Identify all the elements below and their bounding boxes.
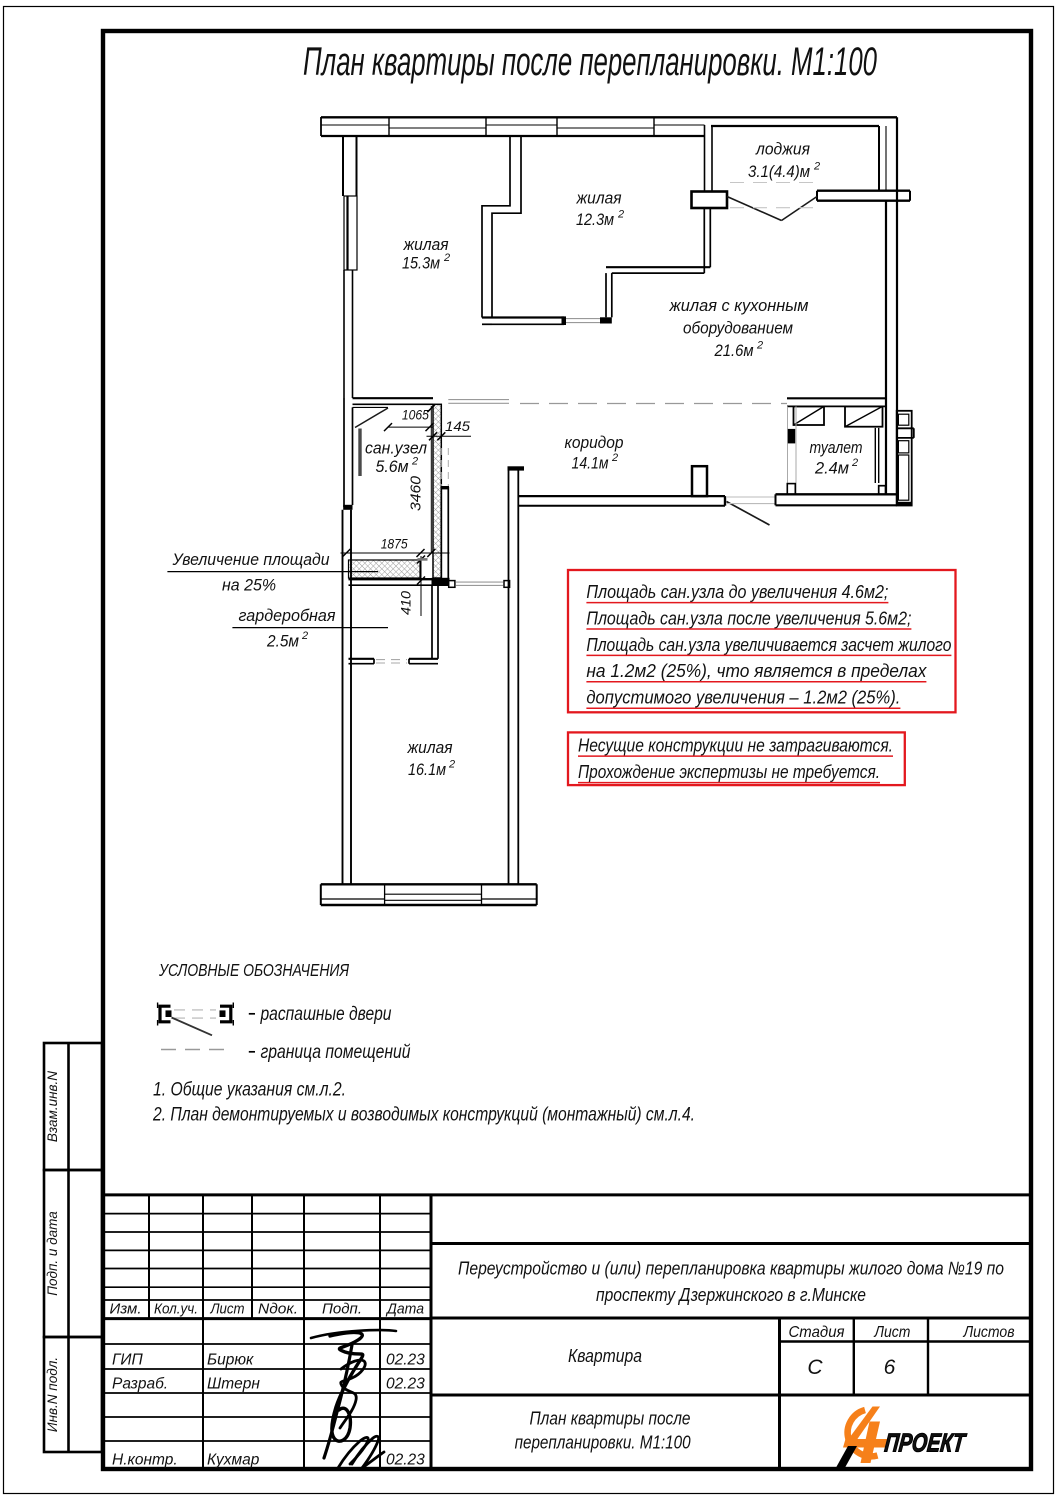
svg-text:14.1м: 14.1м bbox=[572, 455, 609, 473]
svg-text:1875: 1875 bbox=[381, 537, 408, 552]
svg-text:жилая: жилая bbox=[576, 190, 622, 208]
svg-text:12.3м: 12.3м bbox=[576, 211, 614, 229]
svg-text:жилая: жилая bbox=[403, 236, 449, 254]
svg-text:3460: 3460 bbox=[409, 476, 425, 511]
svg-text:2: 2 bbox=[411, 456, 418, 468]
svg-text:1. Общие указания см.л.2.: 1. Общие указания см.л.2. bbox=[153, 1080, 346, 1101]
svg-text:С: С bbox=[807, 1356, 823, 1379]
svg-text:6: 6 bbox=[884, 1356, 896, 1379]
svg-text:2. План демонтируемых и возвод: 2. План демонтируемых и возводимых конст… bbox=[152, 1105, 695, 1126]
svg-text:02.23: 02.23 bbox=[386, 1452, 425, 1469]
svg-text:Разраб.: Разраб. bbox=[112, 1376, 168, 1393]
svg-text:15.3м: 15.3м bbox=[402, 255, 440, 273]
svg-text:2: 2 bbox=[851, 457, 858, 469]
svg-text:21.6м: 21.6м bbox=[714, 342, 754, 360]
svg-text:ГИП: ГИП bbox=[112, 1352, 144, 1369]
svg-text:1065: 1065 bbox=[402, 408, 429, 423]
svg-text:оборудованием: оборудованием bbox=[683, 320, 793, 338]
svg-text:Переустройство и (или) перепла: Переустройство и (или) перепланировка кв… bbox=[458, 1258, 1004, 1279]
svg-text:туалет: туалет bbox=[810, 439, 863, 457]
svg-text:Площадь сан.узла после увеличе: Площадь сан.узла после увеличения 5.6м2; bbox=[586, 607, 911, 628]
svg-text:План квартиры после: План квартиры после bbox=[530, 1408, 691, 1429]
svg-text:2: 2 bbox=[617, 209, 624, 221]
svg-text:Подп. и дата: Подп. и дата bbox=[45, 1211, 60, 1296]
svg-text:02.23: 02.23 bbox=[386, 1352, 425, 1369]
svg-text:2.5м: 2.5м bbox=[266, 633, 299, 651]
svg-text:перепланировки. М1:100: перепланировки. М1:100 bbox=[515, 1432, 692, 1453]
svg-text:распашные двери: распашные двери bbox=[260, 1004, 392, 1025]
svg-text:гардеробная: гардеробная bbox=[239, 606, 336, 625]
svg-text:2: 2 bbox=[443, 252, 450, 264]
svg-text:Лист: Лист bbox=[210, 1301, 245, 1318]
svg-text:2: 2 bbox=[813, 161, 820, 173]
svg-text:УСЛОВНЫЕ ОБОЗНАЧЕНИЯ: УСЛОВНЫЕ ОБОЗНАЧЕНИЯ bbox=[158, 960, 349, 980]
svg-text:02.23: 02.23 bbox=[386, 1376, 425, 1393]
svg-text:коридор: коридор bbox=[565, 434, 624, 452]
svg-text:лоджия: лоджия bbox=[755, 141, 810, 159]
svg-text:проспекту Дзержинского в г.Мин: проспекту Дзержинского в г.Минске bbox=[596, 1284, 866, 1305]
svg-text:2: 2 bbox=[611, 452, 618, 464]
svg-text:2: 2 bbox=[301, 630, 308, 642]
svg-text:145: 145 bbox=[445, 419, 471, 434]
svg-text:на 1.2м2 (25%), что является в: на 1.2м2 (25%), что является в пределах bbox=[586, 660, 927, 681]
svg-text:Увеличение площади: Увеличение площади bbox=[172, 550, 330, 569]
svg-text:Лист: Лист bbox=[874, 1324, 911, 1341]
svg-text:граница помещений: граница помещений bbox=[261, 1042, 411, 1063]
svg-text:16.1м: 16.1м bbox=[408, 761, 446, 779]
svg-text:2.4м: 2.4м bbox=[814, 460, 849, 478]
svg-text:Квартира: Квартира bbox=[568, 1345, 642, 1366]
svg-text:допустимого увеличения – 1.2м2: допустимого увеличения – 1.2м2 (25%). bbox=[586, 687, 900, 708]
svg-text:Площадь сан.узла до увеличения: Площадь сан.узла до увеличения 4.6м2; bbox=[586, 581, 888, 602]
svg-text:Бирюк: Бирюк bbox=[207, 1352, 254, 1369]
svg-text:ПРОЕКТ: ПРОЕКТ bbox=[883, 1428, 968, 1458]
svg-text:Стадия: Стадия bbox=[789, 1324, 845, 1341]
svg-text:Подп.: Подп. bbox=[322, 1301, 362, 1318]
svg-text:3.1(4.4)м: 3.1(4.4)м bbox=[748, 163, 810, 181]
svg-text:Несущие конструкции не затраги: Несущие конструкции не затрагиваются. bbox=[578, 735, 893, 756]
svg-text:Дата: Дата bbox=[385, 1301, 424, 1318]
svg-text:Штерн: Штерн bbox=[207, 1376, 260, 1393]
svg-text:Прохождение экспертизы не треб: Прохождение экспертизы не требуется. bbox=[578, 761, 880, 782]
svg-text:Изм.: Изм. bbox=[110, 1301, 142, 1318]
svg-text:2: 2 bbox=[756, 340, 763, 352]
svg-text:План квартиры после перепланир: План квартиры после перепланировки. М1:1… bbox=[303, 40, 877, 84]
svg-text:Н.контр.: Н.контр. bbox=[112, 1452, 178, 1469]
svg-text:Инв.N подл.: Инв.N подл. bbox=[45, 1357, 60, 1432]
svg-text:2: 2 bbox=[448, 759, 455, 771]
svg-text:Кухмар: Кухмар bbox=[207, 1452, 260, 1469]
svg-text:жилая: жилая bbox=[407, 739, 453, 757]
svg-text:410: 410 bbox=[399, 590, 414, 615]
svg-text:Кол.уч.: Кол.уч. bbox=[154, 1301, 198, 1318]
svg-text:Nдок.: Nдок. bbox=[258, 1301, 298, 1318]
svg-text:Площадь сан.узла увеличивается: Площадь сан.узла увеличивается засчет жи… bbox=[586, 634, 951, 655]
svg-text:Листов: Листов bbox=[963, 1324, 1015, 1341]
svg-text:на 25%: на 25% bbox=[222, 576, 276, 595]
svg-text:5.6м: 5.6м bbox=[376, 458, 409, 476]
svg-text:Взам.инв.N: Взам.инв.N bbox=[45, 1071, 60, 1142]
svg-text:жилая с кухонным: жилая с кухонным bbox=[669, 297, 809, 315]
